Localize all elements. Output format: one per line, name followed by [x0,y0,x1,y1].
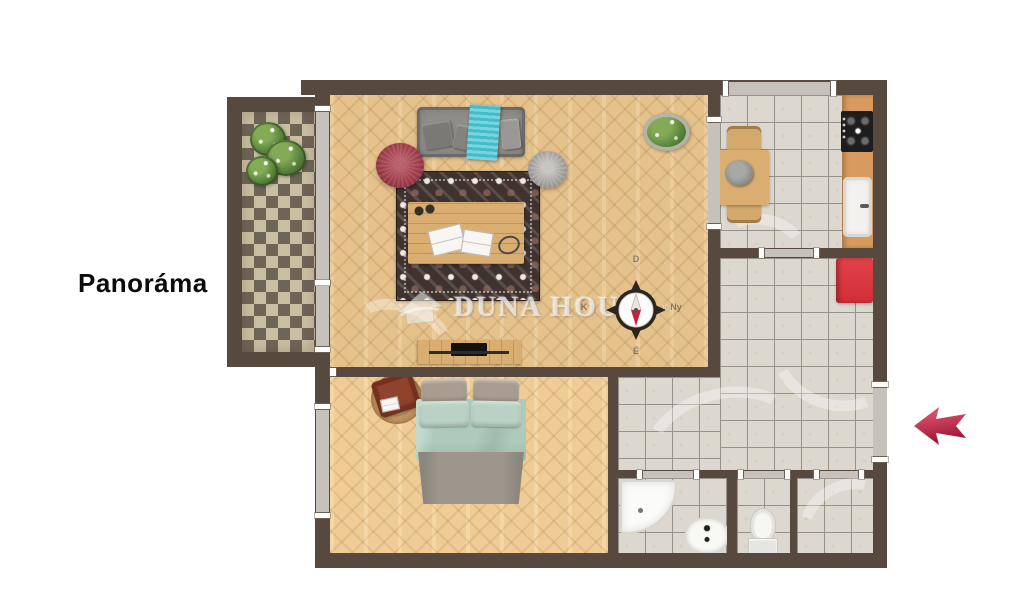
storage-door [820,471,858,478]
wc-door [744,471,784,478]
compass-letter-south: D [633,254,640,264]
tv-console [417,340,521,364]
tv [451,343,487,356]
kitchen-door [765,249,813,257]
toilet-bowl [750,508,776,542]
toilet [748,508,776,554]
wall-living-bedroom [330,367,720,377]
compass-letter-west: Ny [670,302,682,312]
bed-pillow-teal [471,401,521,428]
bed [415,377,527,504]
bedroom-window [316,410,329,512]
living-room-window [316,112,329,280]
balcony-door [316,286,329,346]
door-stop [330,368,336,376]
wall-balcony-bottom [227,352,330,367]
dining-chair-top [727,126,761,153]
bed-pillow [421,378,468,403]
bathroom-sink-bidet [685,517,729,554]
bed-pillow-teal [419,401,469,428]
wall-right [873,80,887,568]
cookware [725,160,753,186]
slippers [413,204,437,217]
sofa-cushion [421,120,454,150]
compass-letter-north: É [633,346,639,356]
entrance-door [873,388,887,456]
wall-balcony-left [227,97,242,367]
wall-bottom [315,553,887,568]
bed-blanket [418,452,524,504]
soundbar [429,351,509,354]
kitchen-serving-window [708,123,720,223]
panorama-label: Panoráma [78,268,208,299]
magazine [460,229,493,257]
turquoise-throw [466,104,501,161]
kitchen-window [729,82,830,95]
bed-pillow [473,378,520,403]
balcony-plant [246,156,278,186]
dining-table [719,150,769,205]
bathroom-door [643,471,693,478]
compass-rose-icon [594,268,678,357]
sofa-cushion [499,118,521,150]
sofa [417,107,525,157]
stove-cooktop [841,111,873,152]
compass-letter-east: K [581,302,588,312]
plant-living-room [643,113,690,151]
wall-wc-storage [790,470,797,568]
wall-balcony-top [227,97,315,112]
gray-pouf [528,151,567,188]
entrance-arrow-icon [912,402,970,450]
kitchen-sink [843,177,872,237]
floor-plan: DUNA HOUSE ® D É K Ny Panoráma [0,0,1024,614]
red-cabinet [836,258,873,303]
red-pouf [376,143,424,188]
wall-bathroom-wc [727,470,737,568]
